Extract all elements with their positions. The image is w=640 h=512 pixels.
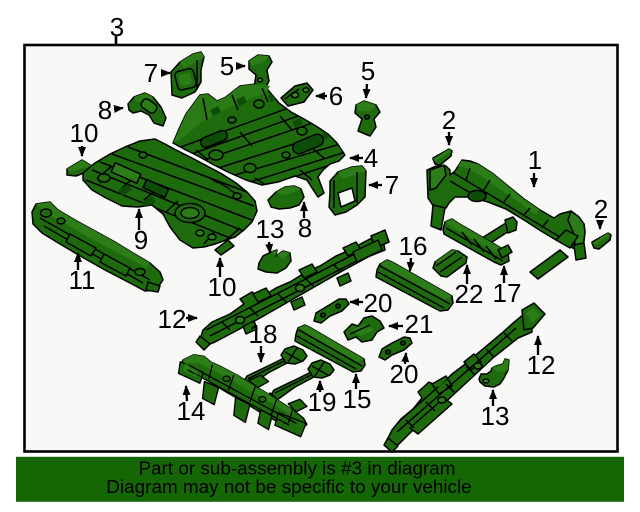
svg-text:12: 12 bbox=[158, 304, 187, 334]
svg-text:20: 20 bbox=[364, 288, 393, 318]
svg-text:19: 19 bbox=[308, 387, 337, 417]
svg-text:5: 5 bbox=[220, 51, 234, 81]
svg-text:Diagram may not be specific to: Diagram may not be specific to your vehi… bbox=[106, 477, 471, 498]
svg-text:10: 10 bbox=[70, 118, 99, 148]
svg-text:18: 18 bbox=[249, 319, 278, 349]
svg-text:2: 2 bbox=[594, 194, 608, 224]
svg-text:12: 12 bbox=[527, 350, 556, 380]
svg-text:14: 14 bbox=[177, 396, 206, 426]
svg-text:9: 9 bbox=[134, 225, 148, 255]
svg-text:4: 4 bbox=[364, 143, 378, 173]
svg-text:6: 6 bbox=[329, 81, 343, 111]
svg-text:13: 13 bbox=[481, 401, 510, 431]
svg-text:22: 22 bbox=[455, 279, 484, 309]
svg-text:8: 8 bbox=[98, 95, 112, 125]
svg-text:10: 10 bbox=[208, 272, 237, 302]
svg-text:1: 1 bbox=[528, 145, 542, 175]
svg-text:13: 13 bbox=[256, 214, 285, 244]
svg-text:17: 17 bbox=[493, 278, 522, 308]
svg-text:2: 2 bbox=[442, 105, 456, 135]
svg-text:11: 11 bbox=[69, 265, 96, 295]
svg-text:21: 21 bbox=[405, 309, 434, 339]
svg-text:7: 7 bbox=[385, 170, 399, 200]
svg-text:16: 16 bbox=[399, 231, 428, 261]
svg-text:5: 5 bbox=[361, 56, 375, 86]
svg-text:7: 7 bbox=[144, 58, 158, 88]
svg-text:3: 3 bbox=[110, 12, 124, 42]
